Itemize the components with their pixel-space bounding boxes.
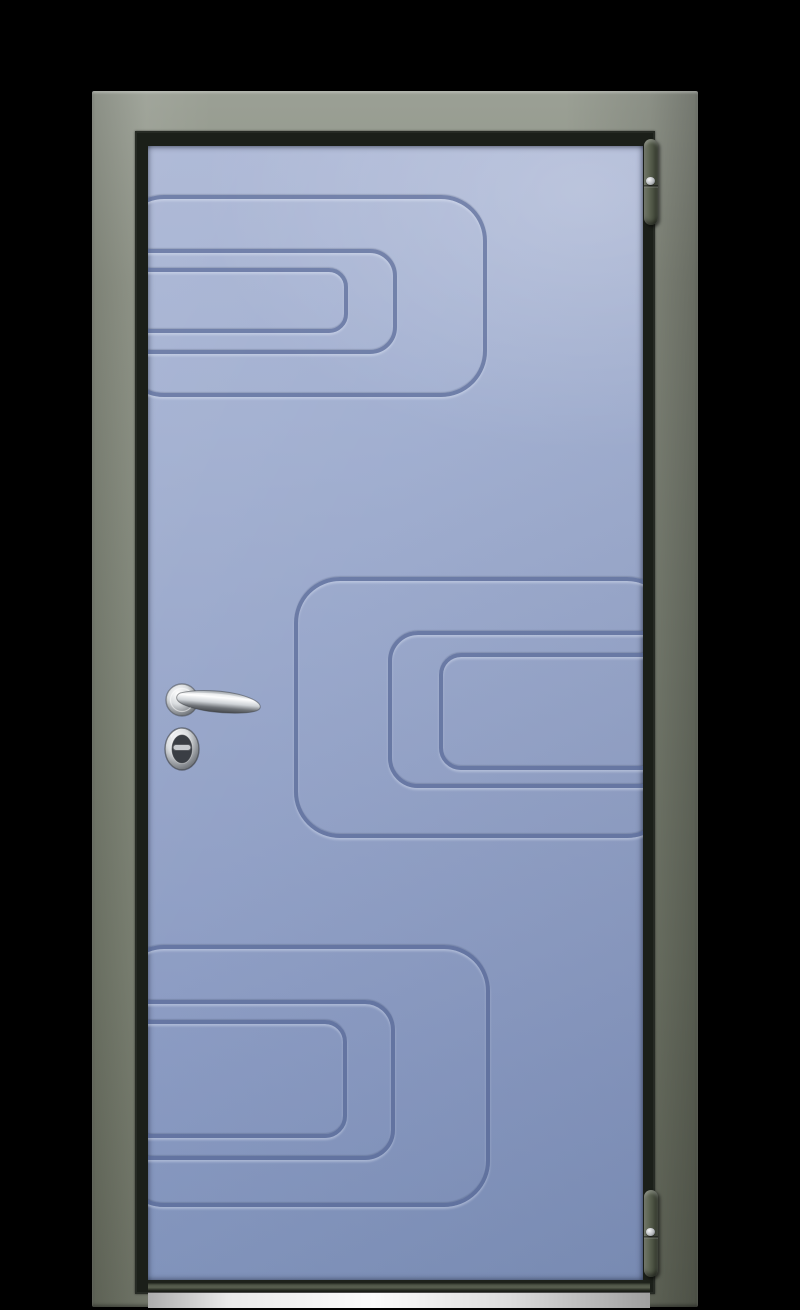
panel-groove: [148, 1020, 347, 1138]
thumbturn: [173, 745, 191, 751]
lock-cylinder: [160, 722, 204, 776]
threshold-sill: [148, 1292, 650, 1308]
panel-groove: [439, 653, 643, 770]
bottom-hinge: [644, 1190, 658, 1277]
sill-strip: [148, 1280, 650, 1292]
top-hinge: [644, 139, 658, 225]
panel-groove: [148, 268, 348, 333]
door-product-photo: [0, 0, 800, 1310]
door-leaf: [148, 146, 643, 1280]
